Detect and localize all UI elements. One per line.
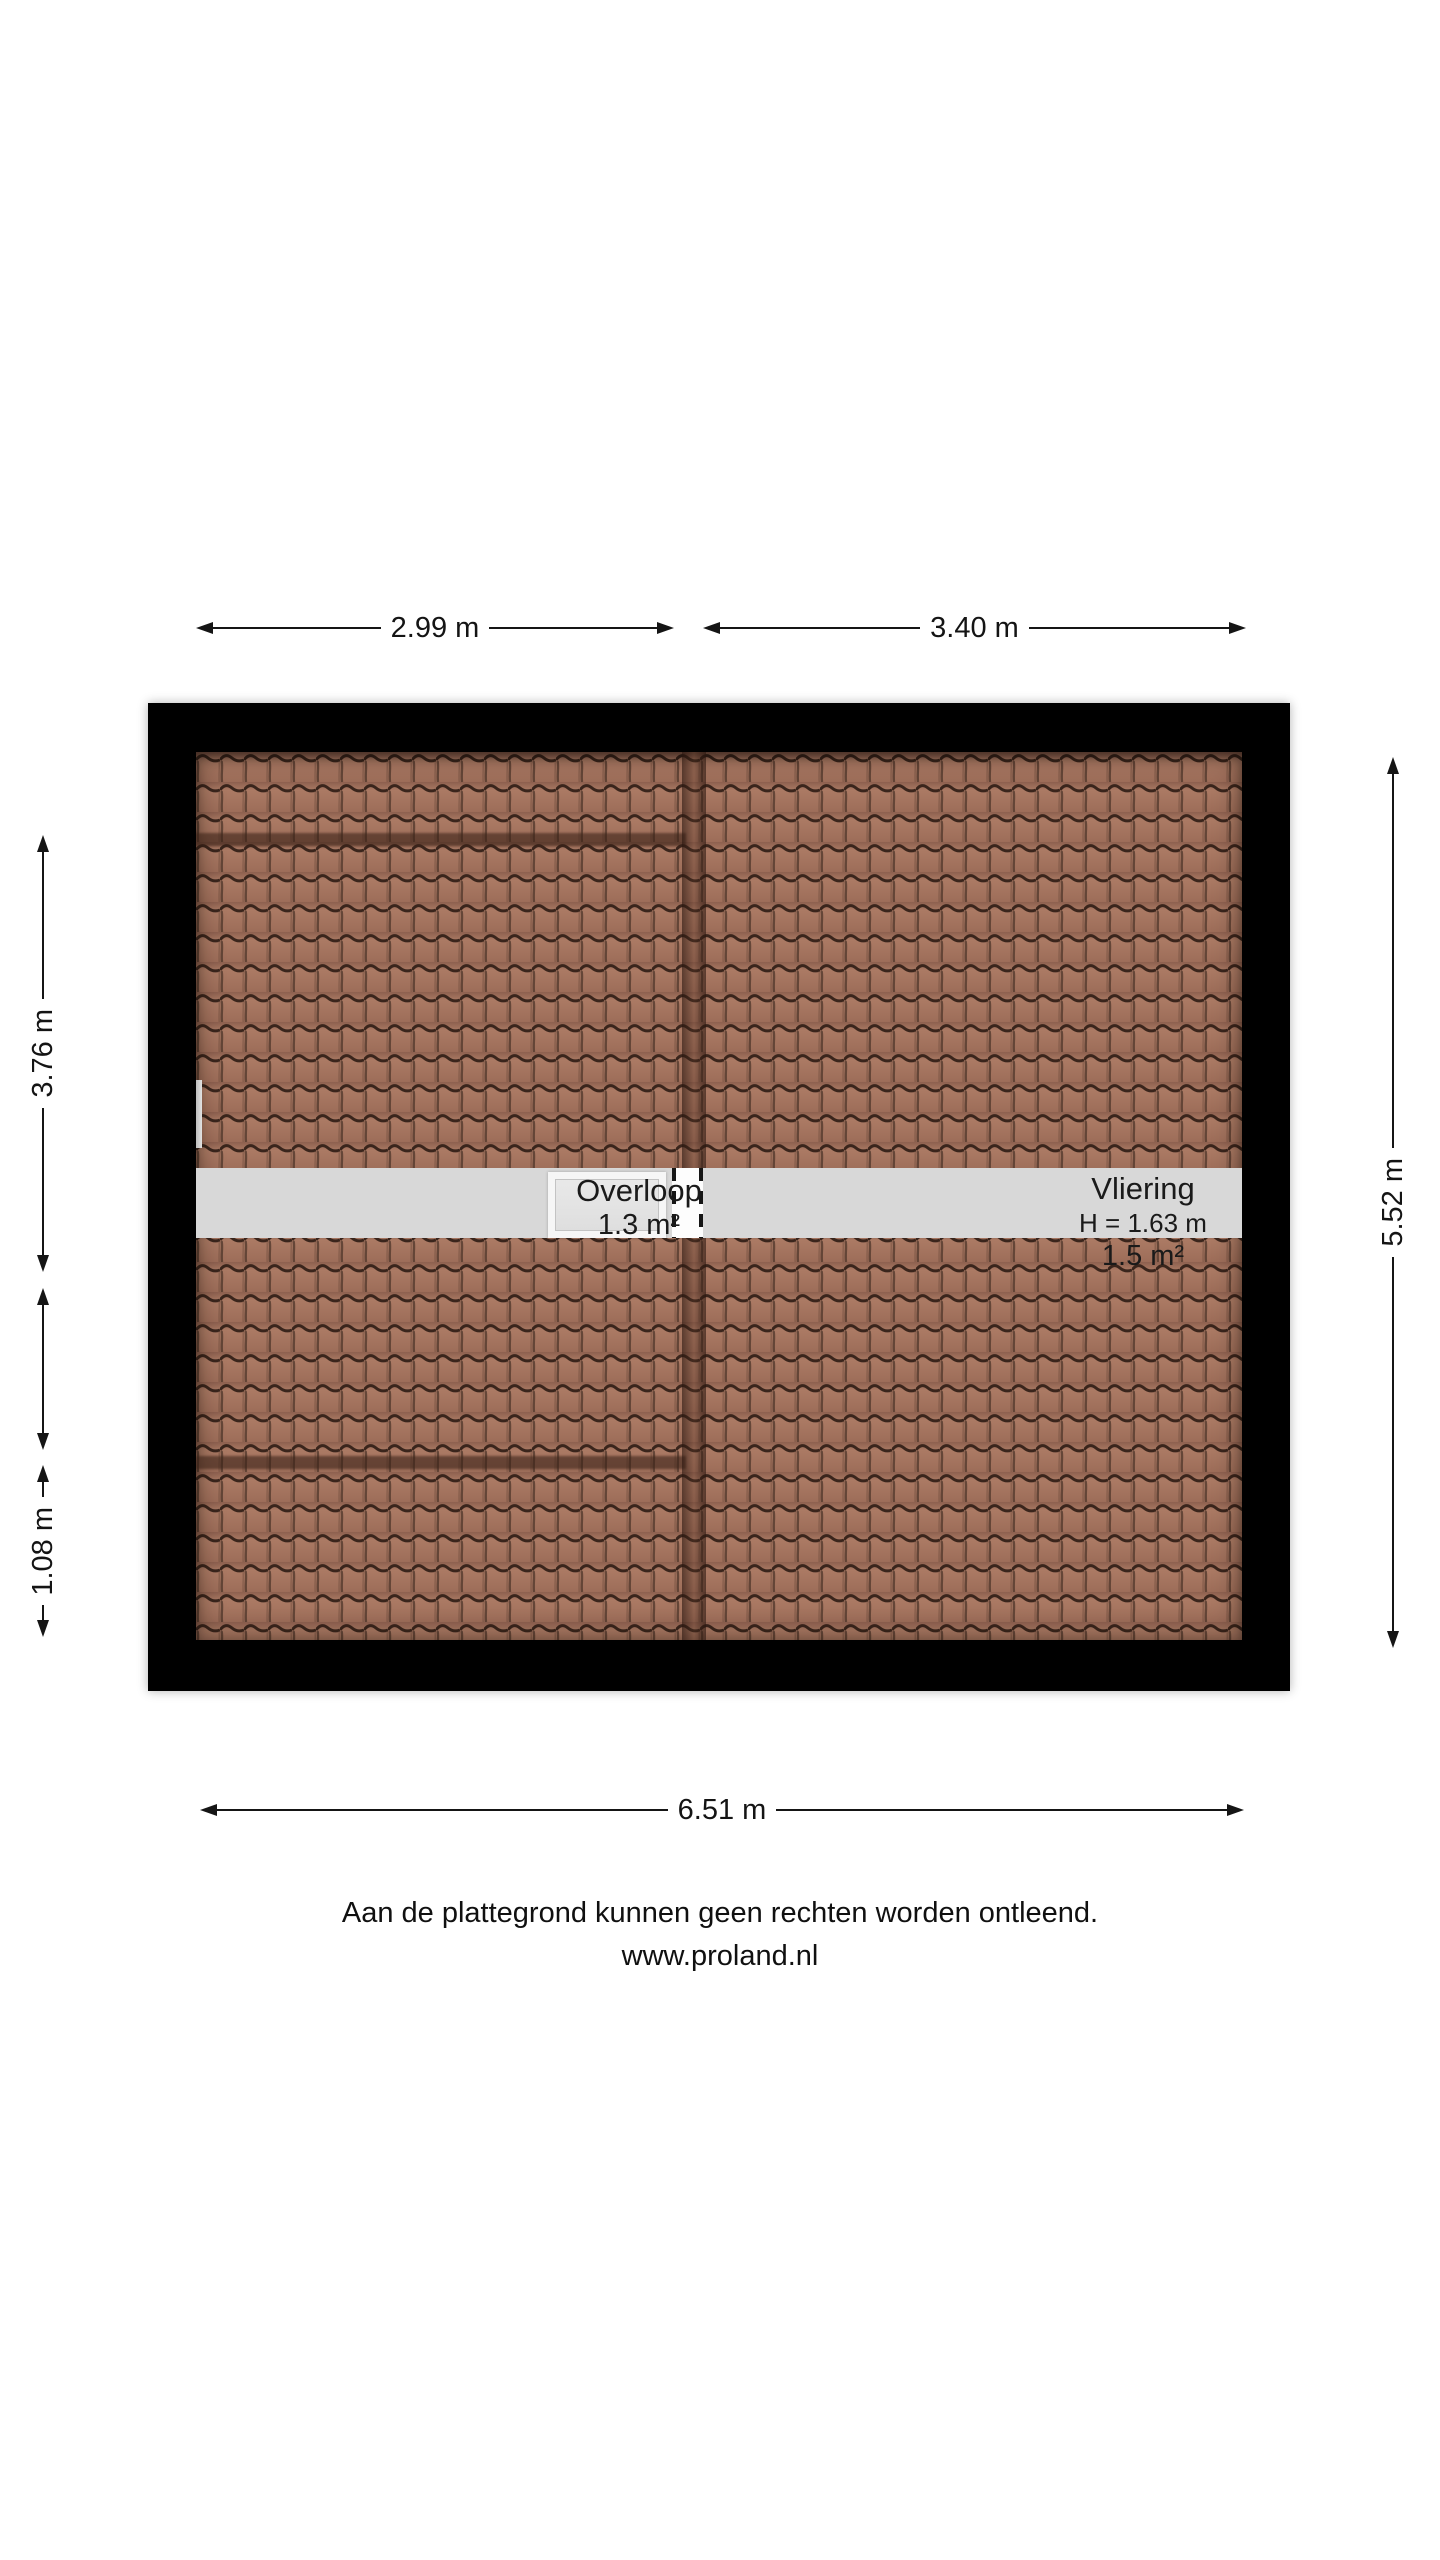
- floor-plan: Overloop 1.3 m² Vliering H = 1.63 m 1.5 …: [148, 703, 1290, 1691]
- arrowhead-left-icon: [703, 622, 720, 634]
- room-area: 1.3 m²: [519, 1209, 759, 1242]
- dimension-left-upper: 3.76 m: [25, 835, 61, 1272]
- room-name: Overloop: [519, 1172, 759, 1209]
- dimension-label: 3.76 m: [27, 999, 60, 1108]
- dimension-left-lower: 1.08 m: [25, 1465, 61, 1637]
- room-name: Vliering: [1023, 1170, 1242, 1207]
- arrowhead-up-icon: [37, 1465, 49, 1482]
- roof-shadow-line-lower: [196, 1456, 686, 1469]
- arrowhead-down-icon: [37, 1433, 49, 1450]
- dimension-bottom: 6.51 m: [200, 1792, 1244, 1828]
- dimension-label: 2.99 m: [381, 612, 490, 645]
- room-height: H = 1.63 m: [1023, 1207, 1242, 1240]
- arrowhead-up-icon: [37, 1288, 49, 1305]
- dimension-top-left: 2.99 m: [196, 610, 674, 646]
- dimension-label: 3.40 m: [920, 612, 1029, 645]
- dimension-label: 1.08 m: [27, 1497, 60, 1606]
- dimension-right: 5.52 m: [1375, 757, 1411, 1648]
- room-area: 1.5 m²: [1023, 1240, 1242, 1273]
- arrowhead-right-icon: [1227, 1804, 1244, 1816]
- roof-surface: Overloop 1.3 m² Vliering H = 1.63 m 1.5 …: [196, 752, 1242, 1640]
- dimension-left-connector: [25, 1288, 61, 1450]
- arrowhead-down-icon: [37, 1620, 49, 1637]
- arrowhead-left-icon: [200, 1804, 217, 1816]
- arrowhead-up-icon: [1387, 757, 1399, 774]
- roof-shadow-line-upper: [196, 833, 686, 846]
- room-label-overloop: Overloop 1.3 m²: [519, 1172, 759, 1242]
- footer: Aan de plattegrond kunnen geen rechten w…: [0, 1892, 1440, 1978]
- arrowhead-left-icon: [196, 622, 213, 634]
- arrowhead-down-icon: [1387, 1631, 1399, 1648]
- dimension-label: 6.51 m: [668, 1794, 777, 1827]
- disclaimer-text: Aan de plattegrond kunnen geen rechten w…: [0, 1892, 1440, 1935]
- arrowhead-right-icon: [1229, 622, 1246, 634]
- room-label-vliering: Vliering H = 1.63 m 1.5 m²: [1023, 1170, 1242, 1273]
- arrowhead-up-icon: [37, 835, 49, 852]
- dimension-top-right: 3.40 m: [703, 610, 1246, 646]
- arrowhead-right-icon: [657, 622, 674, 634]
- arrowhead-down-icon: [37, 1255, 49, 1272]
- website-text: www.proland.nl: [0, 1935, 1440, 1978]
- dimension-label: 5.52 m: [1377, 1148, 1410, 1257]
- left-wall-opening: [196, 1080, 202, 1148]
